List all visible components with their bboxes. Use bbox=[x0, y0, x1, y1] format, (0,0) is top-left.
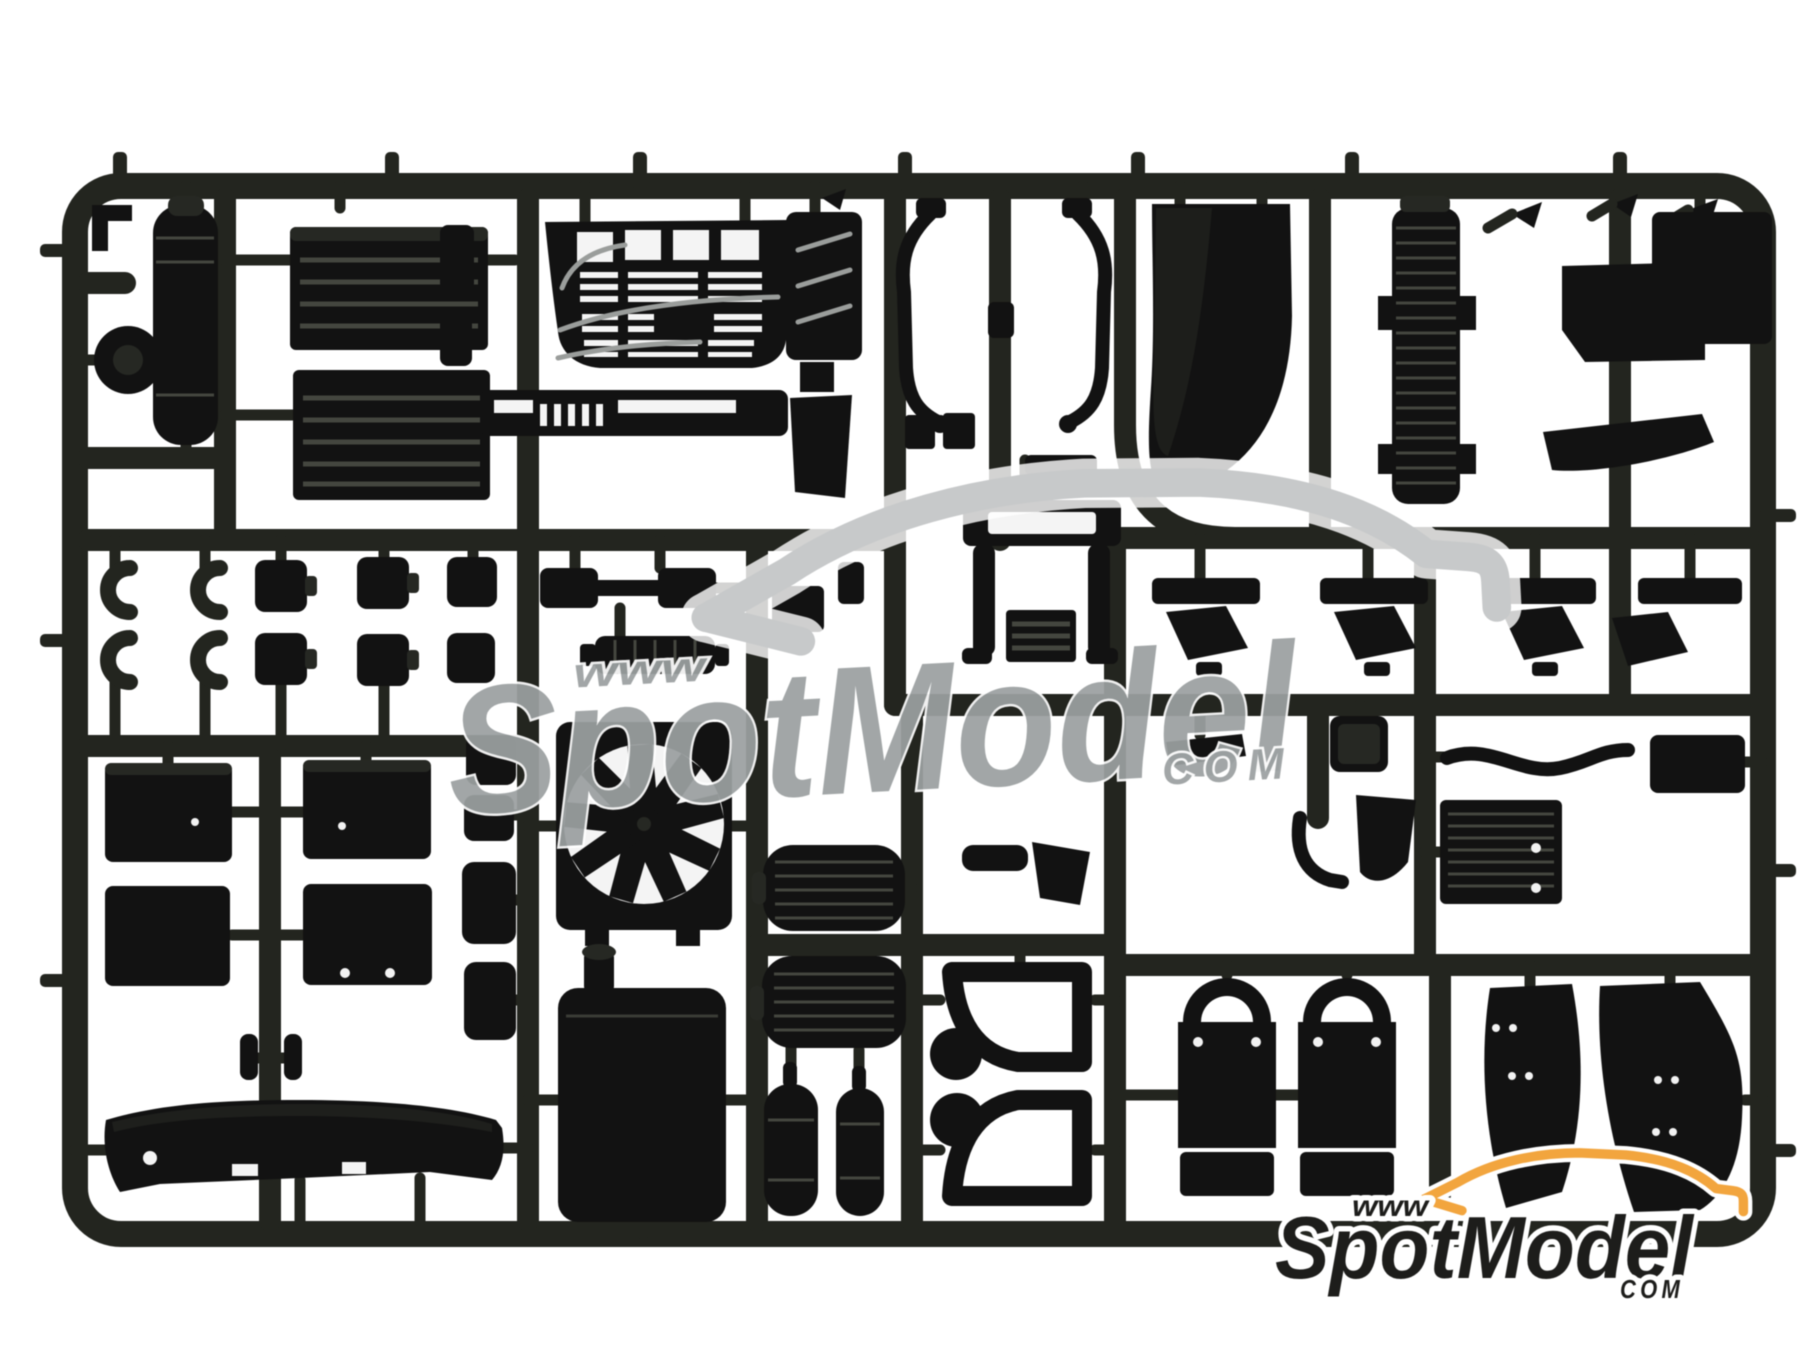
logo-tld-text: COM bbox=[1620, 1274, 1684, 1304]
watermark-tld-text: COM bbox=[1161, 739, 1295, 795]
part-sun-visor bbox=[1543, 414, 1714, 471]
sprue-product-photo: www SpotModel COM www SpotModel COM bbox=[0, 0, 1800, 1350]
part-corner-deflector-panel bbox=[1149, 204, 1292, 492]
part-mud-flap-1 bbox=[1178, 978, 1276, 1196]
part-hinge-block-1 bbox=[440, 225, 474, 291]
part-air-tank bbox=[153, 196, 218, 445]
part-shock-assembly bbox=[962, 842, 1090, 905]
watermark-name-text: SpotModel bbox=[442, 605, 1305, 853]
part-spacer-block bbox=[838, 562, 864, 604]
part-wheel-arch-fender-1 bbox=[1484, 984, 1580, 1208]
part-roof-storage-box bbox=[1562, 212, 1772, 362]
part-mount-pad-1 bbox=[905, 415, 935, 449]
part-fuel-tank bbox=[558, 944, 726, 1222]
watermark-logo: www SpotModel COM bbox=[435, 462, 1507, 853]
sprue-photo-canvas: www SpotModel COM www SpotModel COM bbox=[0, 0, 1800, 1350]
part-air-hose-connector bbox=[1447, 735, 1745, 793]
part-lower-grille-bar bbox=[480, 390, 788, 436]
part-mud-flap-2 bbox=[1298, 978, 1396, 1196]
part-mount-pad-2 bbox=[943, 413, 975, 449]
part-air-reservoirs bbox=[764, 1062, 884, 1216]
part-stub-cylinder-2 bbox=[284, 1034, 302, 1080]
part-ribbed-intake-stack bbox=[1378, 196, 1476, 504]
part-stub-cylinder-1 bbox=[240, 1034, 258, 1080]
part-mirror-arm-left bbox=[903, 198, 949, 433]
part-vent-panel bbox=[786, 212, 862, 498]
part-pipe-elbow bbox=[92, 205, 132, 251]
part-wing-mirror-housing bbox=[1330, 716, 1388, 772]
part-radiator-core-panel bbox=[1440, 800, 1562, 904]
part-small-block bbox=[988, 302, 1014, 338]
part-wing-bracket bbox=[1356, 795, 1416, 881]
part-chassis-bracket-frames bbox=[930, 972, 1082, 1196]
part-pipe-clamps bbox=[108, 568, 220, 682]
part-hinge-block-2 bbox=[440, 308, 472, 366]
part-wheel-arch-fender-2 bbox=[1599, 982, 1742, 1212]
part-mirror-arm-right bbox=[1059, 198, 1105, 433]
part-road-wheel bbox=[94, 326, 162, 394]
part-front-grille bbox=[545, 220, 788, 368]
part-ribbed-side-panel-2 bbox=[293, 370, 490, 500]
